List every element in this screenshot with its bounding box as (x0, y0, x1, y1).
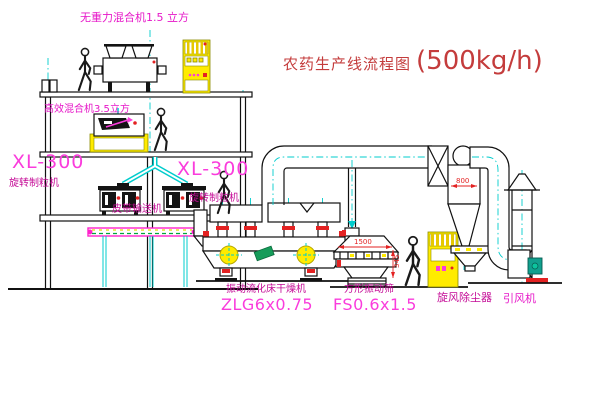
title-capacity: (500kg/h) (416, 46, 543, 76)
label-mixer-3f: 高效混合机3.5立方 (44, 105, 130, 115)
cyclone-width-dimension: 800 (456, 177, 469, 185)
worker-figure (79, 48, 91, 90)
label-granulator-mid-name: 旋转制粒机 (189, 194, 239, 204)
belt-conveyor (88, 228, 197, 287)
diagram-title: 农药生产线流程图 (500kg/h) (283, 46, 543, 76)
worker-figure (406, 237, 420, 285)
label-dryer-name: 振动流化床干燥机 (226, 285, 306, 295)
label-sieve-model: FS0.6x1.5 (333, 297, 417, 313)
control-cabinet-upper (183, 40, 210, 93)
label-dryer-model: ZLG6x0.75 (221, 297, 313, 313)
label-granulator-left-model: XL-300 (12, 153, 84, 172)
label-belt-conveyor: 皮带输送机 (112, 205, 162, 215)
sieve-feed-pipe (342, 160, 359, 236)
label-granulator-left-name: 旋转制粒机 (9, 179, 59, 189)
sieve-length-dimension: 1500 (354, 238, 372, 246)
title-text: 农药生产线流程图 (283, 53, 411, 74)
zero-gravity-mixer (94, 44, 166, 92)
sieve-height-dimension: 345 (393, 255, 401, 268)
control-cabinet-lower (428, 232, 458, 287)
label-top-mixer: 无重力混合机1.5 立方 (80, 12, 189, 23)
label-fan: 引风机 (503, 293, 536, 304)
exhaust-duct (262, 146, 432, 205)
label-granulator-mid-model: XL-300 (177, 160, 249, 179)
worker-figure (155, 108, 167, 150)
label-sieve-name: 方形振动筛 (344, 285, 394, 295)
cad-flow-diagram: 1500 345 (0, 0, 600, 403)
label-cyclone: 旋风除尘器 (437, 292, 492, 303)
